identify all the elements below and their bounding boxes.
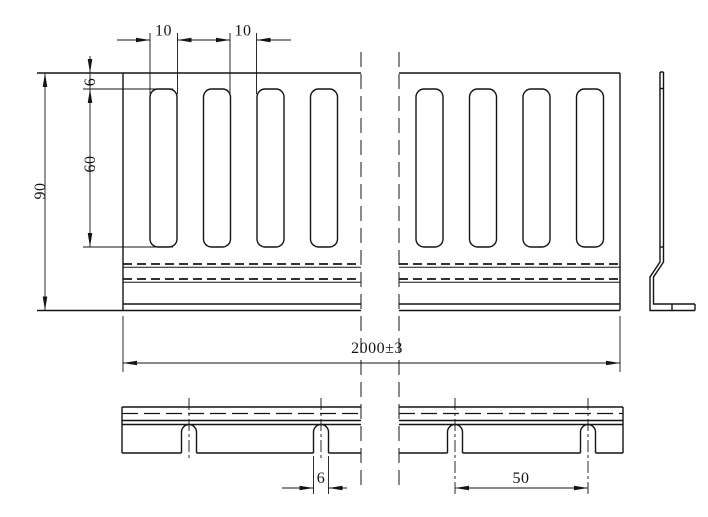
dim-text-overall-length: 2000±3 bbox=[351, 340, 403, 357]
dim-text-slot-width: 10 bbox=[155, 23, 172, 40]
dim-text-plate-width: 90 bbox=[32, 183, 49, 200]
dim-text-slot-height: 60 bbox=[82, 156, 99, 173]
dim-text-top-margin: 6 bbox=[82, 78, 99, 87]
paper-background bbox=[0, 0, 708, 517]
dim-text-notch-width: 6 bbox=[317, 470, 326, 487]
dim-text-slot-spacing: 10 bbox=[235, 23, 252, 40]
engineering-drawing-page: 10 10 6 60 90 2000±3 6 50 bbox=[0, 0, 708, 517]
drawing-canvas: 10 10 6 60 90 2000±3 6 50 bbox=[0, 0, 708, 517]
dim-text-notch-spacing: 50 bbox=[513, 470, 530, 487]
